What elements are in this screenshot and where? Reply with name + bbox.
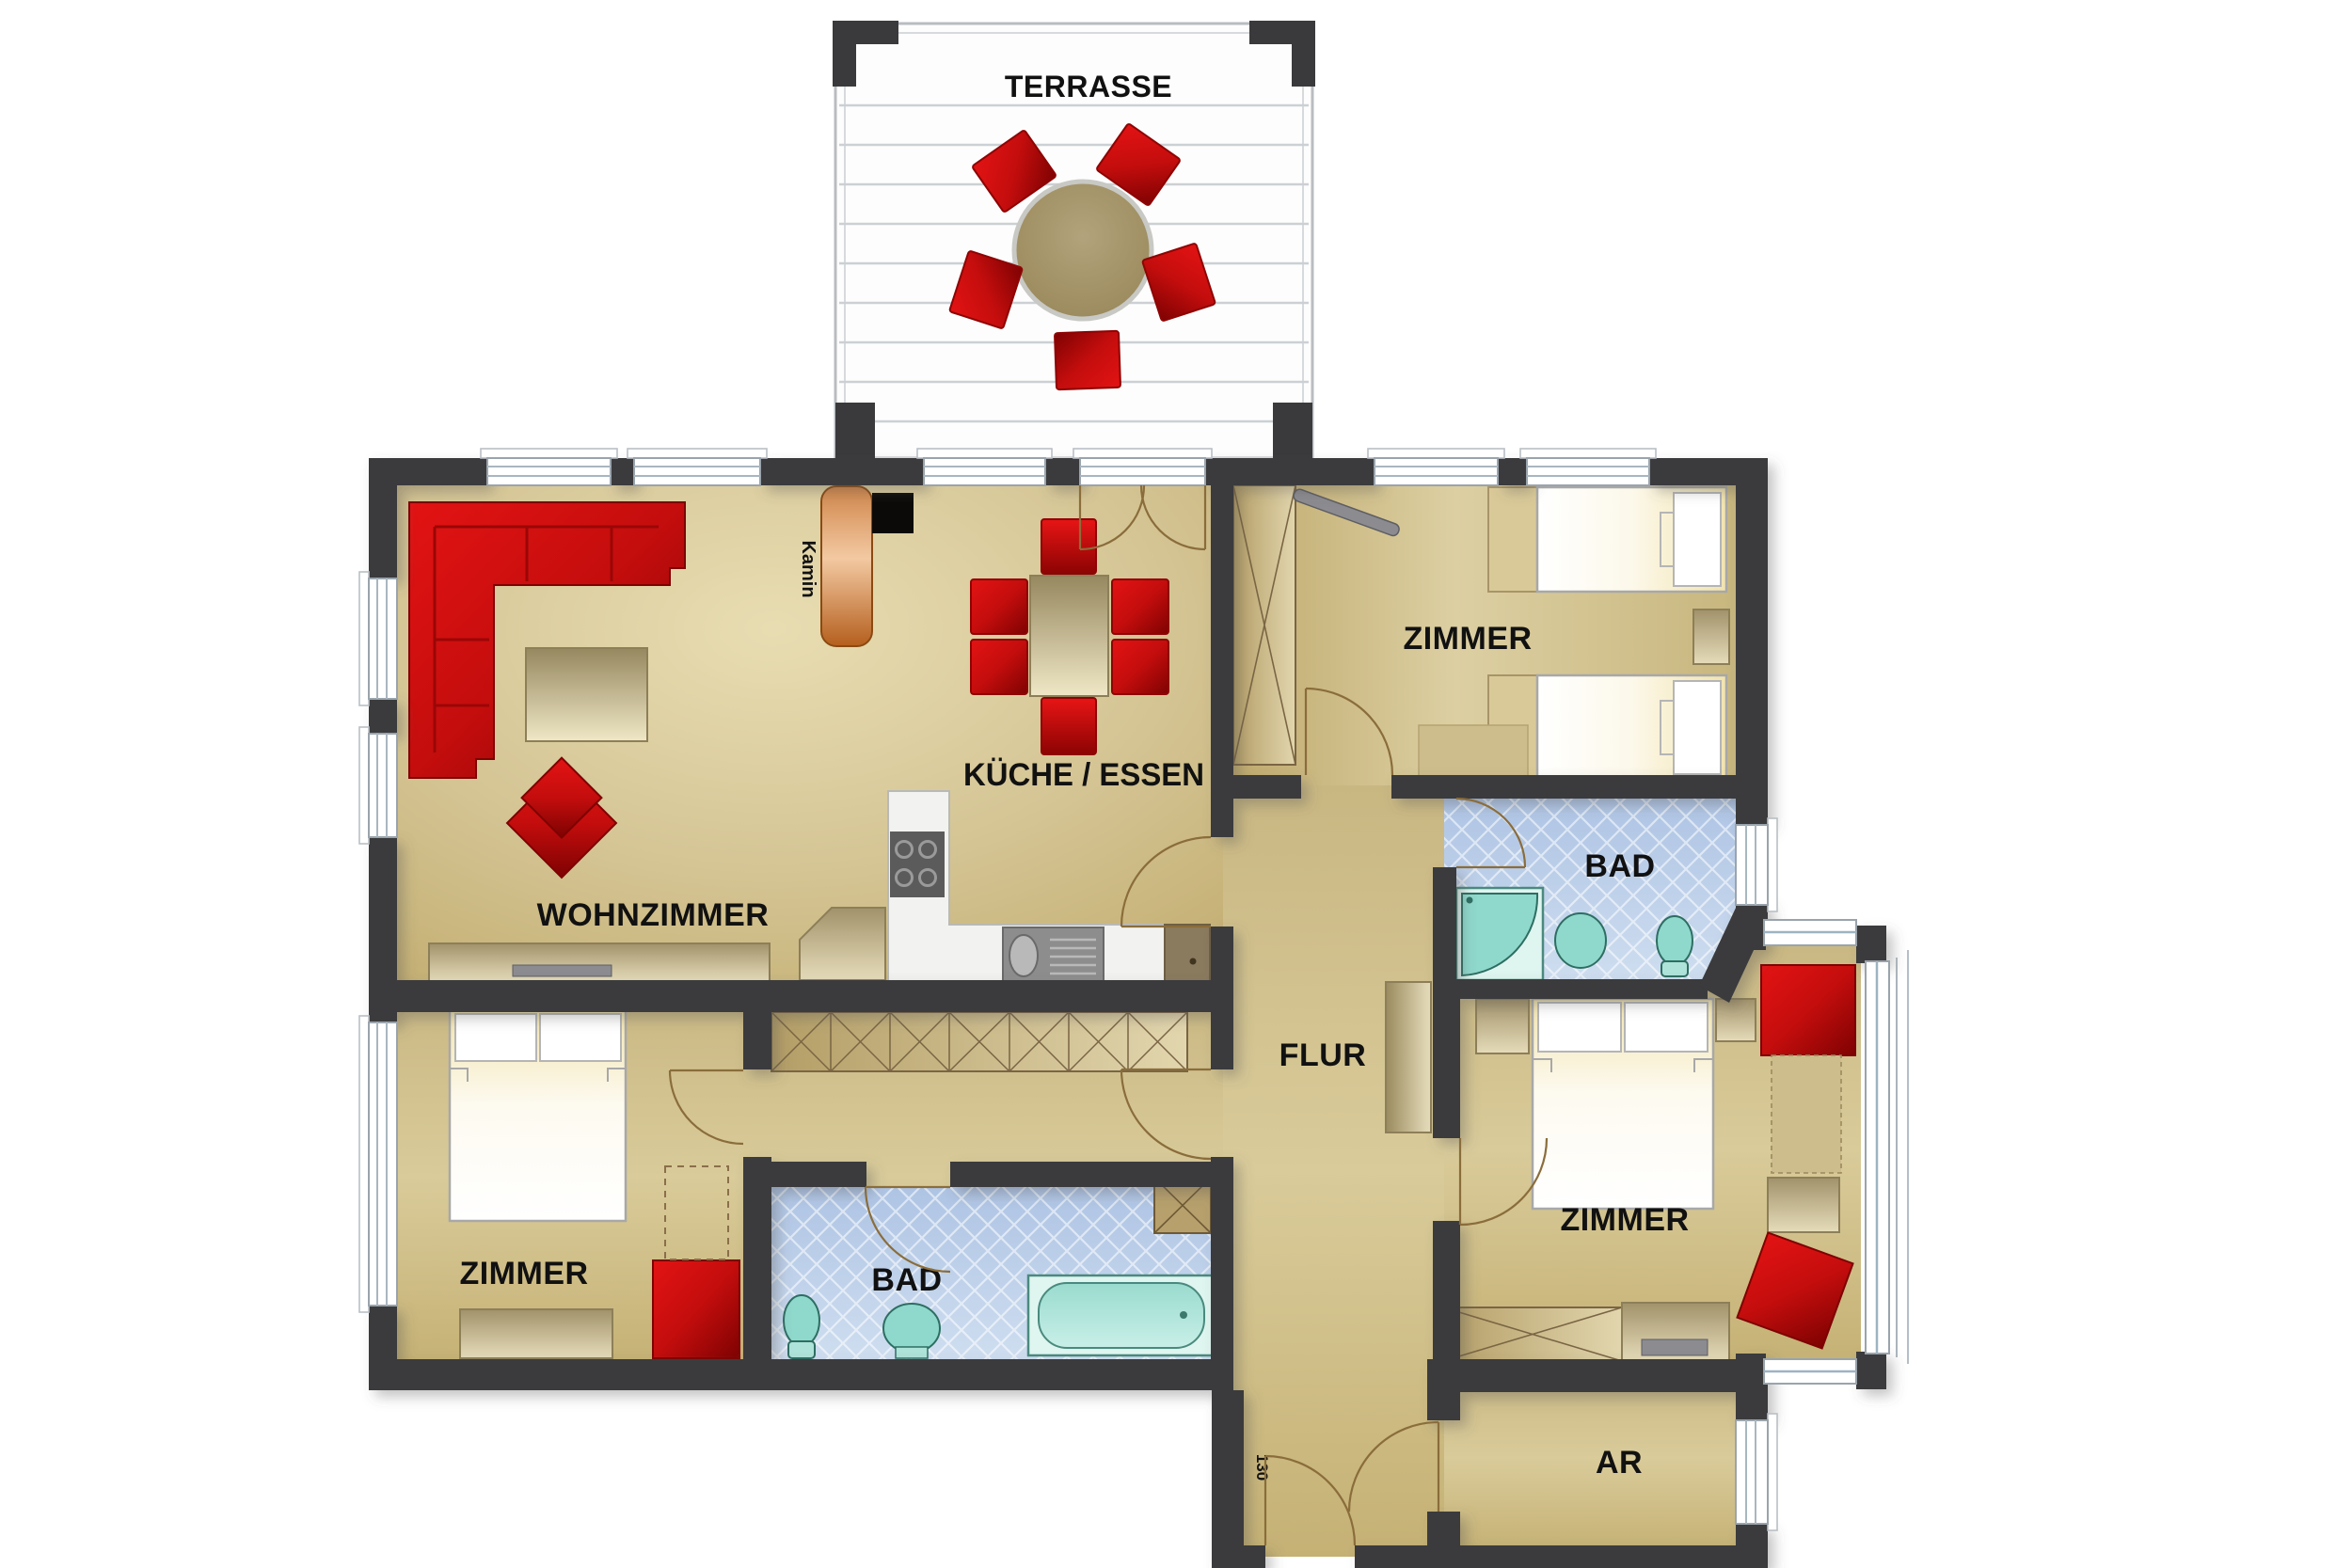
svg-text:BAD: BAD [871,1262,942,1298]
svg-text:130: 130 [1253,1454,1271,1481]
svg-text:AR: AR [1596,1445,1643,1481]
svg-text:WOHNZIMMER: WOHNZIMMER [537,897,770,933]
svg-text:ZIMMER: ZIMMER [1560,1202,1689,1238]
svg-text:KÜCHE / ESSEN: KÜCHE / ESSEN [963,757,1204,793]
svg-text:ZIMMER: ZIMMER [459,1256,588,1291]
svg-text:TERRASSE: TERRASSE [1005,70,1172,103]
svg-text:ZIMMER: ZIMMER [1403,621,1532,657]
svg-text:FLUR: FLUR [1279,1037,1367,1073]
svg-text:Kamin: Kamin [798,540,818,597]
svg-text:BAD: BAD [1584,848,1655,884]
